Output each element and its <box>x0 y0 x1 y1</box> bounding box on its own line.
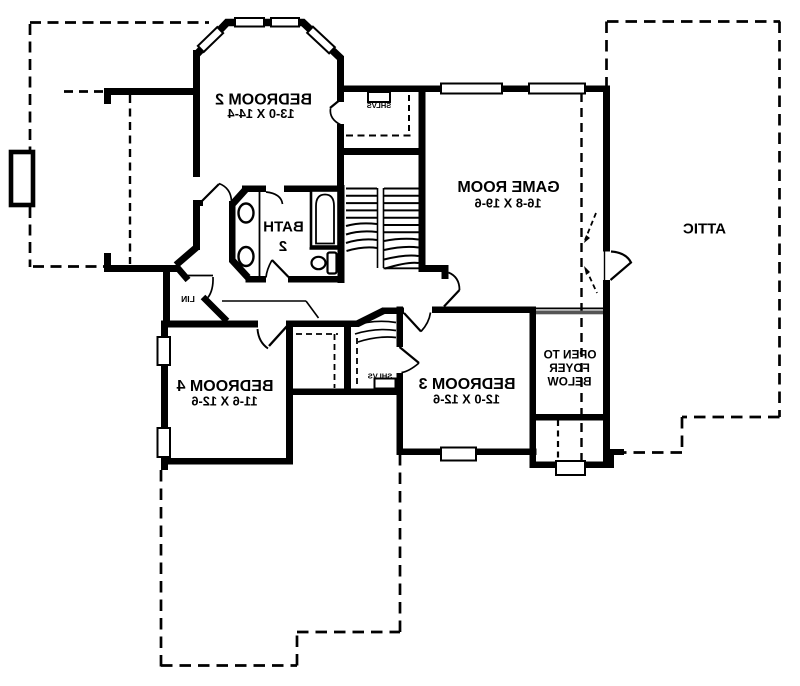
svg-text:SHLVS: SHLVS <box>368 372 392 381</box>
svg-text:13-0 X 14-4: 13-0 X 14-4 <box>227 106 295 121</box>
svg-text:16-8 X 19-6: 16-8 X 19-6 <box>475 196 542 211</box>
svg-text:SHLVS: SHLVS <box>367 101 391 110</box>
svg-text:FOYER: FOYER <box>549 361 590 375</box>
svg-text:ATTIC: ATTIC <box>683 221 726 238</box>
svg-text:BATH: BATH <box>263 219 304 236</box>
svg-text:GAME ROOM: GAME ROOM <box>457 179 559 196</box>
svg-text:OPEN TO: OPEN TO <box>544 348 597 362</box>
svg-text:LIN: LIN <box>181 294 195 304</box>
svg-text:11-6 X 12-6: 11-6 X 12-6 <box>191 394 257 409</box>
svg-text:BEDROOM 4: BEDROOM 4 <box>176 378 273 395</box>
svg-text:BELOW: BELOW <box>547 375 592 389</box>
svg-text:12-0 X 12-6: 12-0 X 12-6 <box>433 392 500 407</box>
svg-text:2: 2 <box>279 238 287 255</box>
svg-text:BEDROOM 3: BEDROOM 3 <box>418 376 515 393</box>
